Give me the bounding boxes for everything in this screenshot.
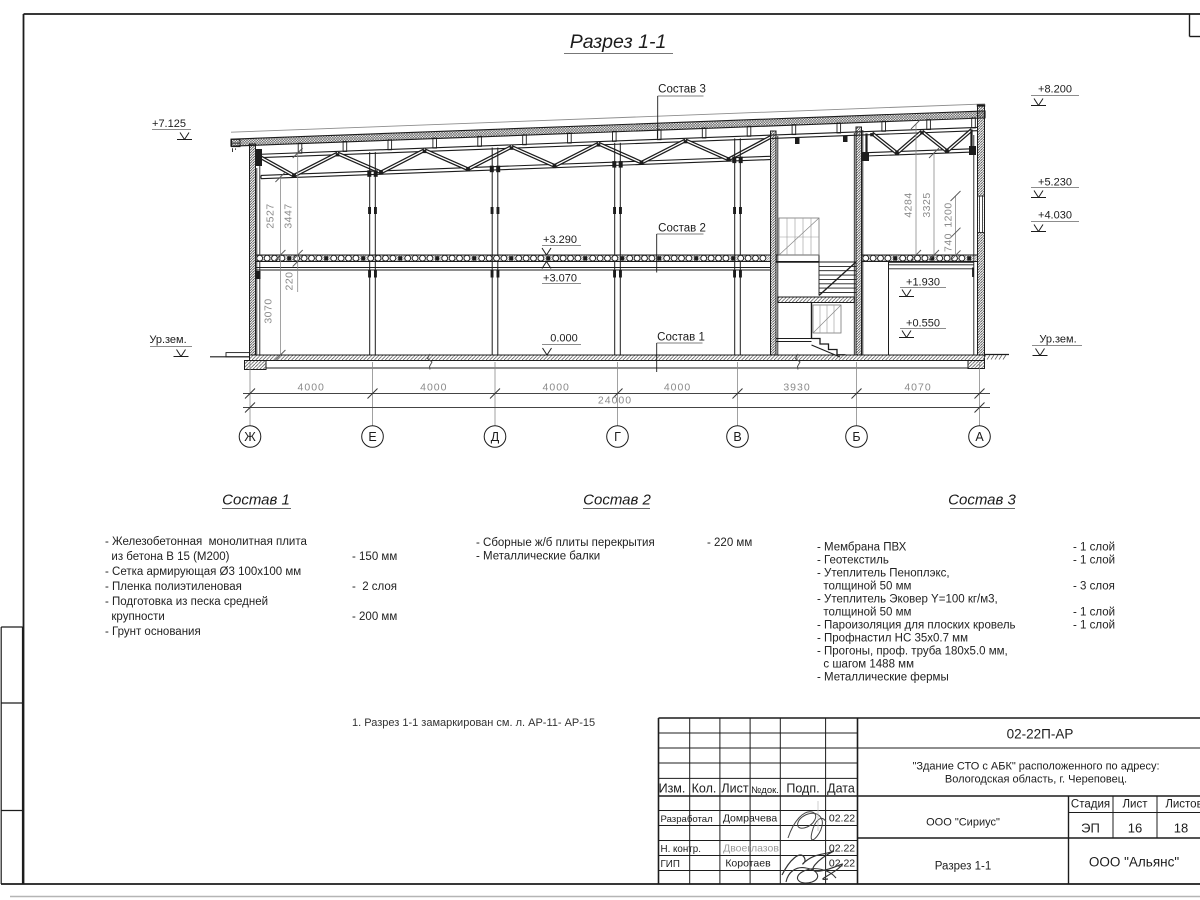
svg-text:3447: 3447 (283, 203, 295, 228)
svg-text:+1.930: +1.930 (906, 277, 940, 289)
svg-text:2527: 2527 (265, 203, 277, 228)
svg-text:Состав 3: Состав 3 (948, 492, 1016, 509)
svg-text:02.22: 02.22 (829, 843, 855, 855)
svg-text:- Подготовка из песка средней: - Подготовка из песка средней (105, 596, 268, 608)
svg-text:- 150 мм: - 150 мм (352, 551, 397, 563)
svg-text:ООО "Альянс": ООО "Альянс" (1089, 855, 1179, 870)
svg-text:Разработал: Разработал (661, 814, 713, 825)
svg-text:"Здание СТО с АБК" расположенн: "Здание СТО с АБК" расположенного по адр… (912, 761, 1159, 773)
svg-text:- 1 слой: - 1 слой (1073, 607, 1115, 619)
svg-text:18: 18 (1174, 821, 1188, 836)
svg-text:Разрез 1-1: Разрез 1-1 (935, 861, 991, 873)
svg-text:с шагом 1488 мм: с шагом 1488 мм (817, 659, 914, 671)
svg-text:толщиной 50 мм: толщиной 50 мм (817, 581, 912, 593)
svg-text:1200: 1200 (943, 202, 955, 227)
svg-text:Д: Д (491, 430, 500, 444)
svg-text:ГИП: ГИП (661, 859, 680, 870)
svg-text:- Металлические балки: - Металлические балки (476, 551, 600, 563)
svg-text:- Грунт основания: - Грунт основания (105, 626, 201, 638)
svg-text:Ур.зем.: Ур.зем. (149, 334, 186, 346)
svg-text:- Сборные ж/б плиты перекрытия: - Сборные ж/б плиты перекрытия (476, 537, 655, 549)
svg-text:- Мембрана ПВХ: - Мембрана ПВХ (817, 542, 907, 554)
svg-text:+7.125: +7.125 (152, 118, 186, 130)
svg-text:220: 220 (284, 271, 296, 290)
svg-text:- Пленка полиэтиленовая: - Пленка полиэтиленовая (105, 581, 242, 593)
svg-text:- 1 слой: - 1 слой (1073, 620, 1115, 632)
svg-text:ЭП: ЭП (1081, 821, 1100, 836)
svg-text:Дата: Дата (827, 782, 855, 796)
svg-text:- Профнастил НС 35х0.7 мм: - Профнастил НС 35х0.7 мм (817, 633, 968, 645)
svg-text:3070: 3070 (263, 298, 275, 323)
svg-text:+4.030: +4.030 (1038, 210, 1072, 222)
svg-text:4070: 4070 (904, 382, 931, 394)
svg-text:Лист: Лист (1123, 799, 1149, 811)
svg-text:Изм.: Изм. (659, 782, 686, 796)
svg-text:1. Разрез 1-1 замаркирован см.: 1. Разрез 1-1 замаркирован см. л. АР-11-… (352, 717, 595, 729)
svg-text:4000: 4000 (543, 382, 570, 394)
svg-text:Вологодская область, г. Черепо: Вологодская область, г. Череповец. (945, 774, 1127, 786)
svg-text:Подп.: Подп. (786, 782, 819, 796)
svg-text:№док.: №док. (751, 785, 779, 796)
svg-text:- Железобетонная монолитная п: - Железобетонная монолитная плита (105, 536, 307, 548)
svg-text:- Металлические фермы: - Металлические фермы (817, 672, 949, 684)
svg-text:Состав 1: Состав 1 (657, 332, 705, 344)
svg-text:- Утеплитель Пеноплэкс,: - Утеплитель Пеноплэкс, (817, 568, 950, 580)
svg-text:Двоеглазов: Двоеглазов (723, 843, 779, 855)
svg-text:0.000: 0.000 (550, 333, 578, 345)
svg-text:Домрачева: Домрачева (723, 813, 778, 825)
svg-text:Кол.: Кол. (692, 782, 717, 796)
svg-text:Е: Е (368, 430, 376, 444)
svg-text:Стадия: Стадия (1071, 799, 1110, 811)
svg-text:- Прогоны, проф. труба 180х5.0: - Прогоны, проф. труба 180х5.0 мм, (817, 646, 1008, 658)
svg-text:Состав 3: Состав 3 (658, 84, 706, 96)
svg-text:- 3 слоя: - 3 слоя (1073, 581, 1115, 593)
svg-text:- 200 мм: - 200 мм (352, 611, 397, 623)
svg-text:А: А (975, 430, 984, 444)
svg-text:- 1 слой: - 1 слой (1073, 555, 1115, 567)
svg-text:толщиной 50 мм: толщиной 50 мм (817, 607, 912, 619)
svg-text:крупности: крупности (105, 611, 165, 623)
svg-text:- 2 слоя: - 2 слоя (352, 581, 397, 593)
svg-text:+3.290: +3.290 (543, 234, 577, 246)
svg-text:Ур.зем.: Ур.зем. (1039, 334, 1076, 346)
svg-text:+3.070: +3.070 (543, 273, 577, 285)
svg-text:из бетона В 15 (М200): из бетона В 15 (М200) (105, 551, 230, 563)
svg-text:- Геотекстиль: - Геотекстиль (817, 555, 889, 567)
svg-text:24000: 24000 (598, 395, 632, 407)
svg-text:4284: 4284 (903, 192, 915, 217)
svg-text:+8.200: +8.200 (1038, 84, 1072, 96)
svg-text:Состав 2: Состав 2 (658, 223, 706, 235)
svg-text:4000: 4000 (664, 382, 691, 394)
svg-text:Н. контр.: Н. контр. (661, 844, 701, 855)
svg-text:Б: Б (852, 430, 860, 444)
svg-text:3930: 3930 (783, 382, 810, 394)
svg-text:4000: 4000 (420, 382, 447, 394)
svg-text:В: В (733, 430, 741, 444)
svg-text:740: 740 (943, 233, 955, 252)
svg-text:ООО "Сириус": ООО "Сириус" (926, 817, 1000, 829)
svg-text:16: 16 (1128, 821, 1142, 836)
svg-text:4000: 4000 (298, 382, 325, 394)
svg-text:- 220 мм: - 220 мм (707, 537, 752, 549)
svg-text:- Утеплитель Эковер Y=100 кг/м: - Утеплитель Эковер Y=100 кг/м3, (817, 594, 998, 606)
svg-text:Ж: Ж (244, 430, 256, 444)
svg-text:Коротаев: Коротаев (725, 858, 771, 870)
svg-text:3325: 3325 (921, 192, 933, 217)
svg-text:02.22: 02.22 (829, 813, 855, 825)
svg-text:Состав 2: Состав 2 (583, 492, 651, 509)
svg-text:+0.550: +0.550 (906, 318, 940, 330)
svg-text:Состав 1: Состав 1 (222, 492, 290, 509)
svg-text:Лист: Лист (721, 782, 748, 796)
svg-text:+5.230: +5.230 (1038, 177, 1072, 189)
svg-text:Листов: Листов (1165, 799, 1200, 811)
svg-text:02-22П-АР: 02-22П-АР (1007, 727, 1074, 742)
svg-text:- 1 слой: - 1 слой (1073, 542, 1115, 554)
svg-text:- Сетка армирующая Ø3 100х100: - Сетка армирующая Ø3 100х100 мм (105, 566, 301, 578)
svg-text:Г: Г (614, 430, 621, 444)
svg-text:Разрез 1-1: Разрез 1-1 (570, 31, 667, 53)
svg-text:- Пароизоляция для плоских кро: - Пароизоляция для плоских кровель (817, 620, 1016, 632)
